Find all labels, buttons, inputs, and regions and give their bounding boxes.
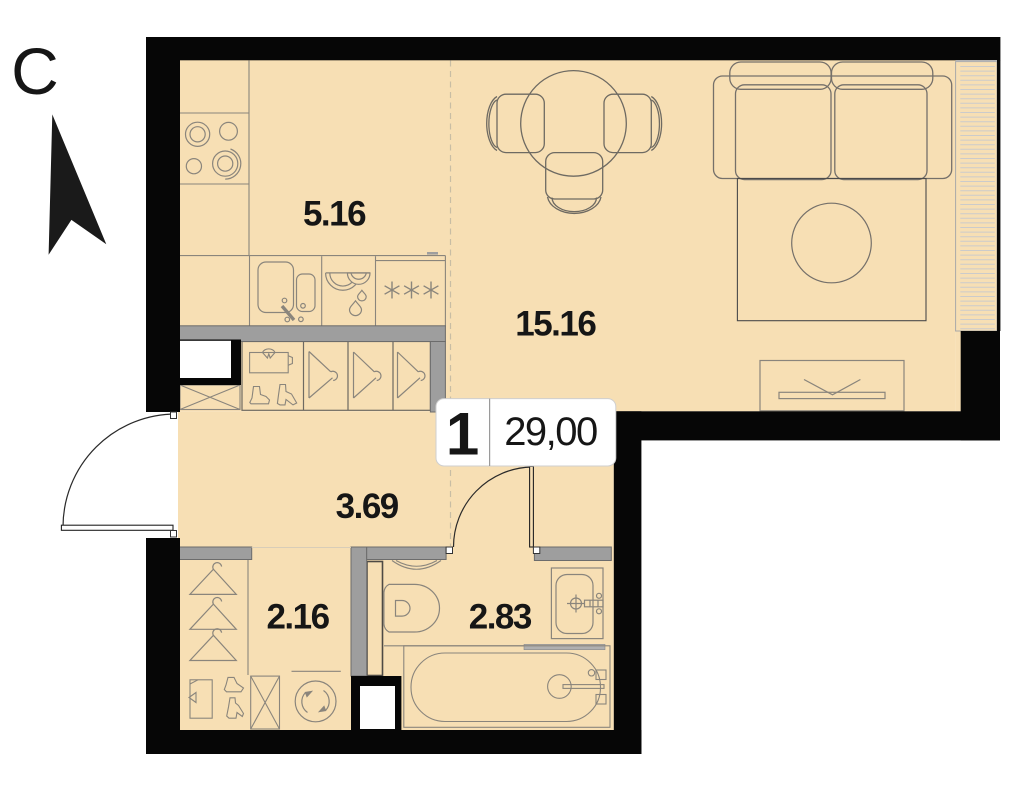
svg-text:5.16: 5.16 [303, 194, 366, 233]
svg-text:29,00: 29,00 [504, 410, 597, 454]
svg-text:С: С [11, 34, 59, 108]
svg-text:2.83: 2.83 [469, 598, 532, 637]
svg-text:3.69: 3.69 [336, 487, 399, 526]
svg-text:15.16: 15.16 [515, 304, 596, 343]
svg-text:2.16: 2.16 [266, 598, 329, 637]
svg-text:1: 1 [446, 401, 479, 468]
